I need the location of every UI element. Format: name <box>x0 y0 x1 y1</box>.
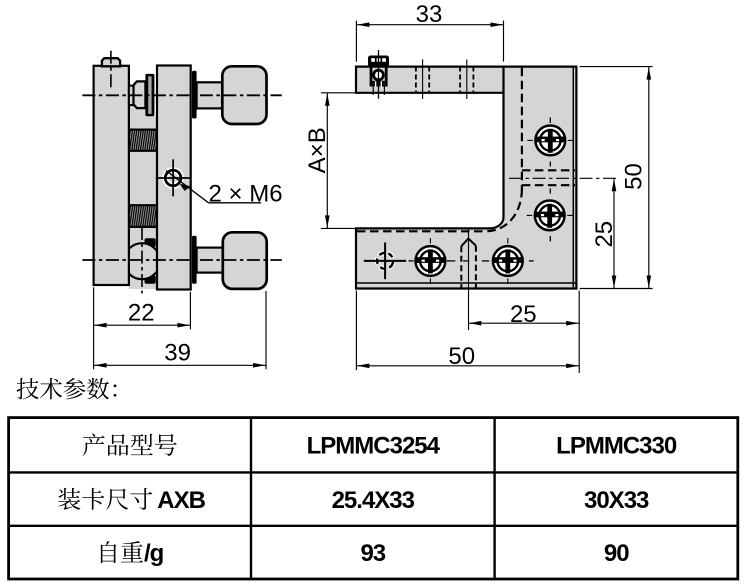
svg-text:LPMMC330: LPMMC330 <box>556 433 677 460</box>
svg-text:AXB: AXB <box>157 487 205 514</box>
svg-text:22: 22 <box>128 299 155 326</box>
svg-text:LPMMC3254: LPMMC3254 <box>307 433 441 460</box>
svg-text:A×B: A×B <box>304 127 331 173</box>
svg-text:25: 25 <box>591 221 618 248</box>
svg-text:33: 33 <box>416 1 443 28</box>
svg-text:30X33: 30X33 <box>584 487 649 514</box>
svg-text:25.4X33: 25.4X33 <box>332 487 415 514</box>
svg-text:90: 90 <box>604 540 629 567</box>
svg-text:93: 93 <box>360 540 385 567</box>
svg-text:/g: /g <box>144 540 164 567</box>
svg-text:50: 50 <box>621 163 648 190</box>
svg-text:50: 50 <box>448 343 475 370</box>
svg-text:25: 25 <box>510 301 537 328</box>
svg-text:2 × M6: 2 × M6 <box>209 181 283 208</box>
svg-text:39: 39 <box>164 340 191 367</box>
